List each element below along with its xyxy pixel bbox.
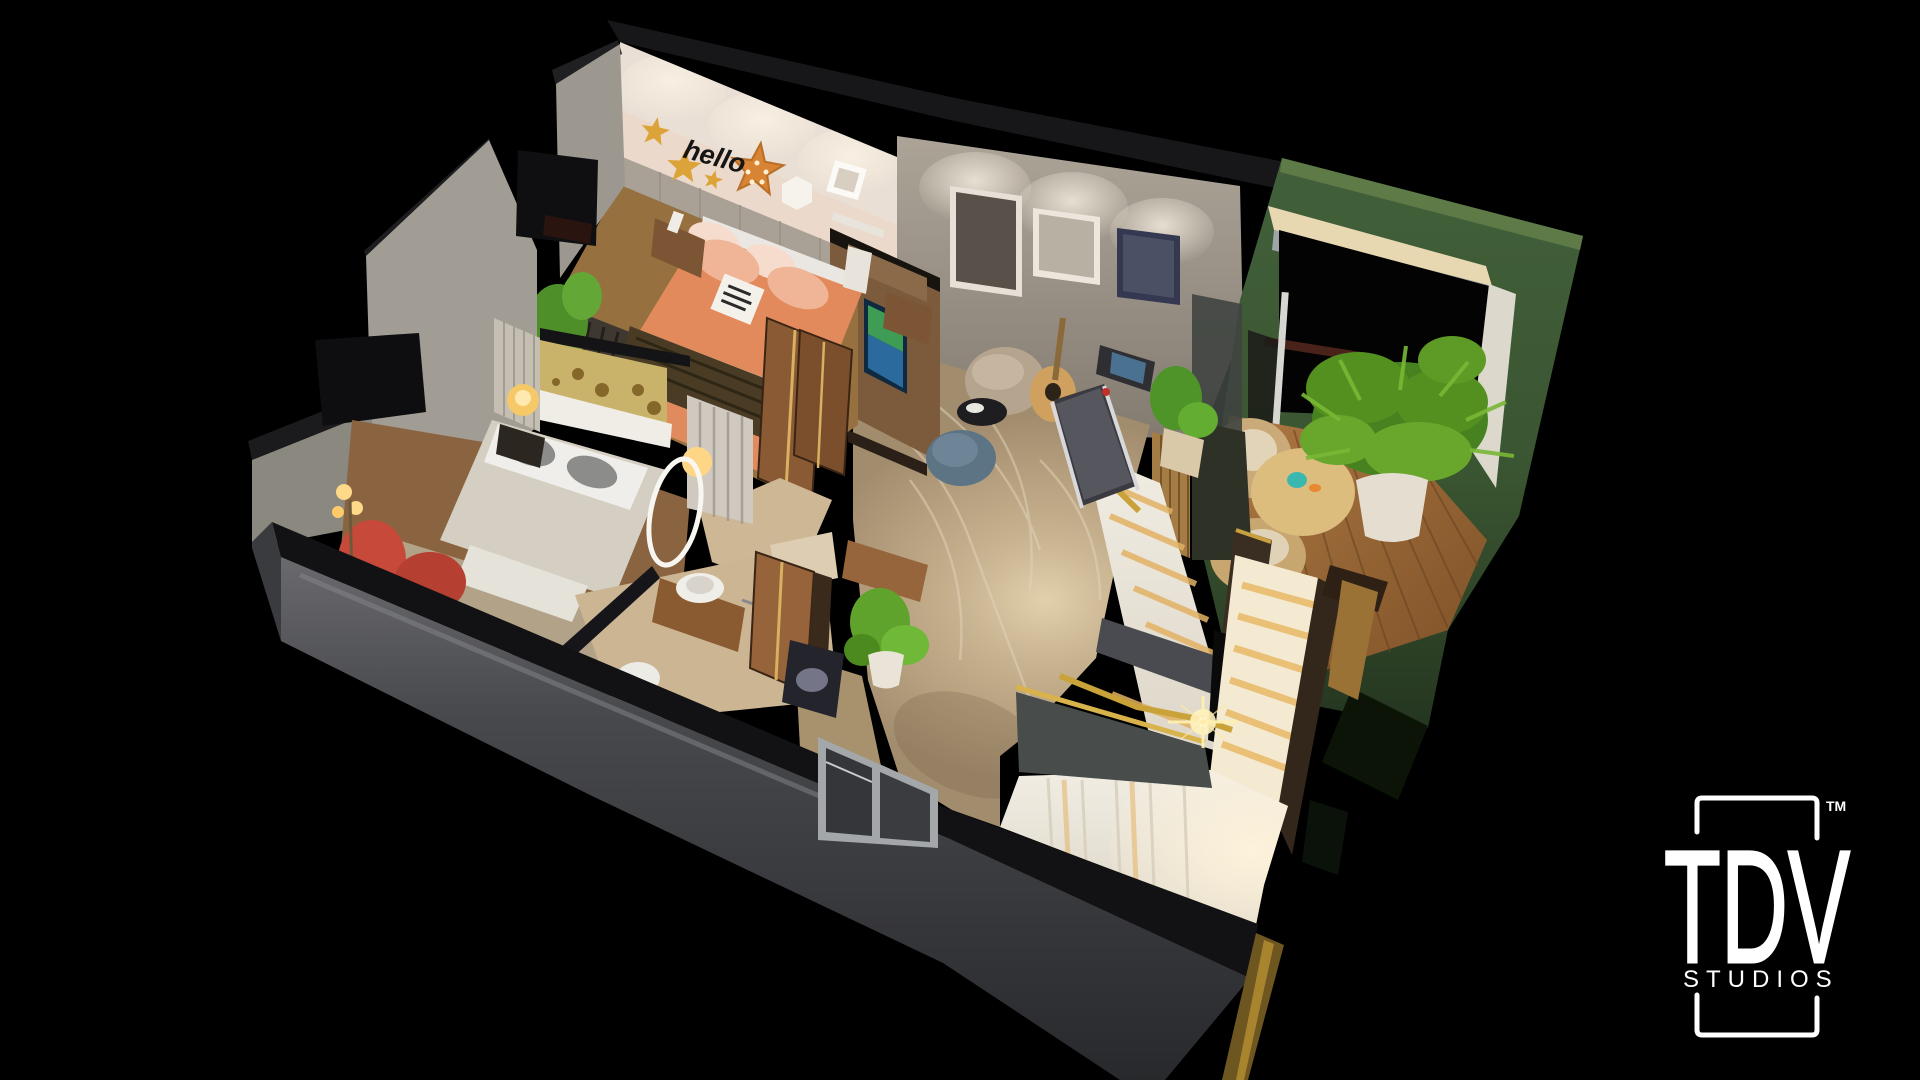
svg-text:STUDIOS: STUDIOS [1683, 966, 1839, 993]
svg-text:TM: TM [1826, 798, 1846, 814]
